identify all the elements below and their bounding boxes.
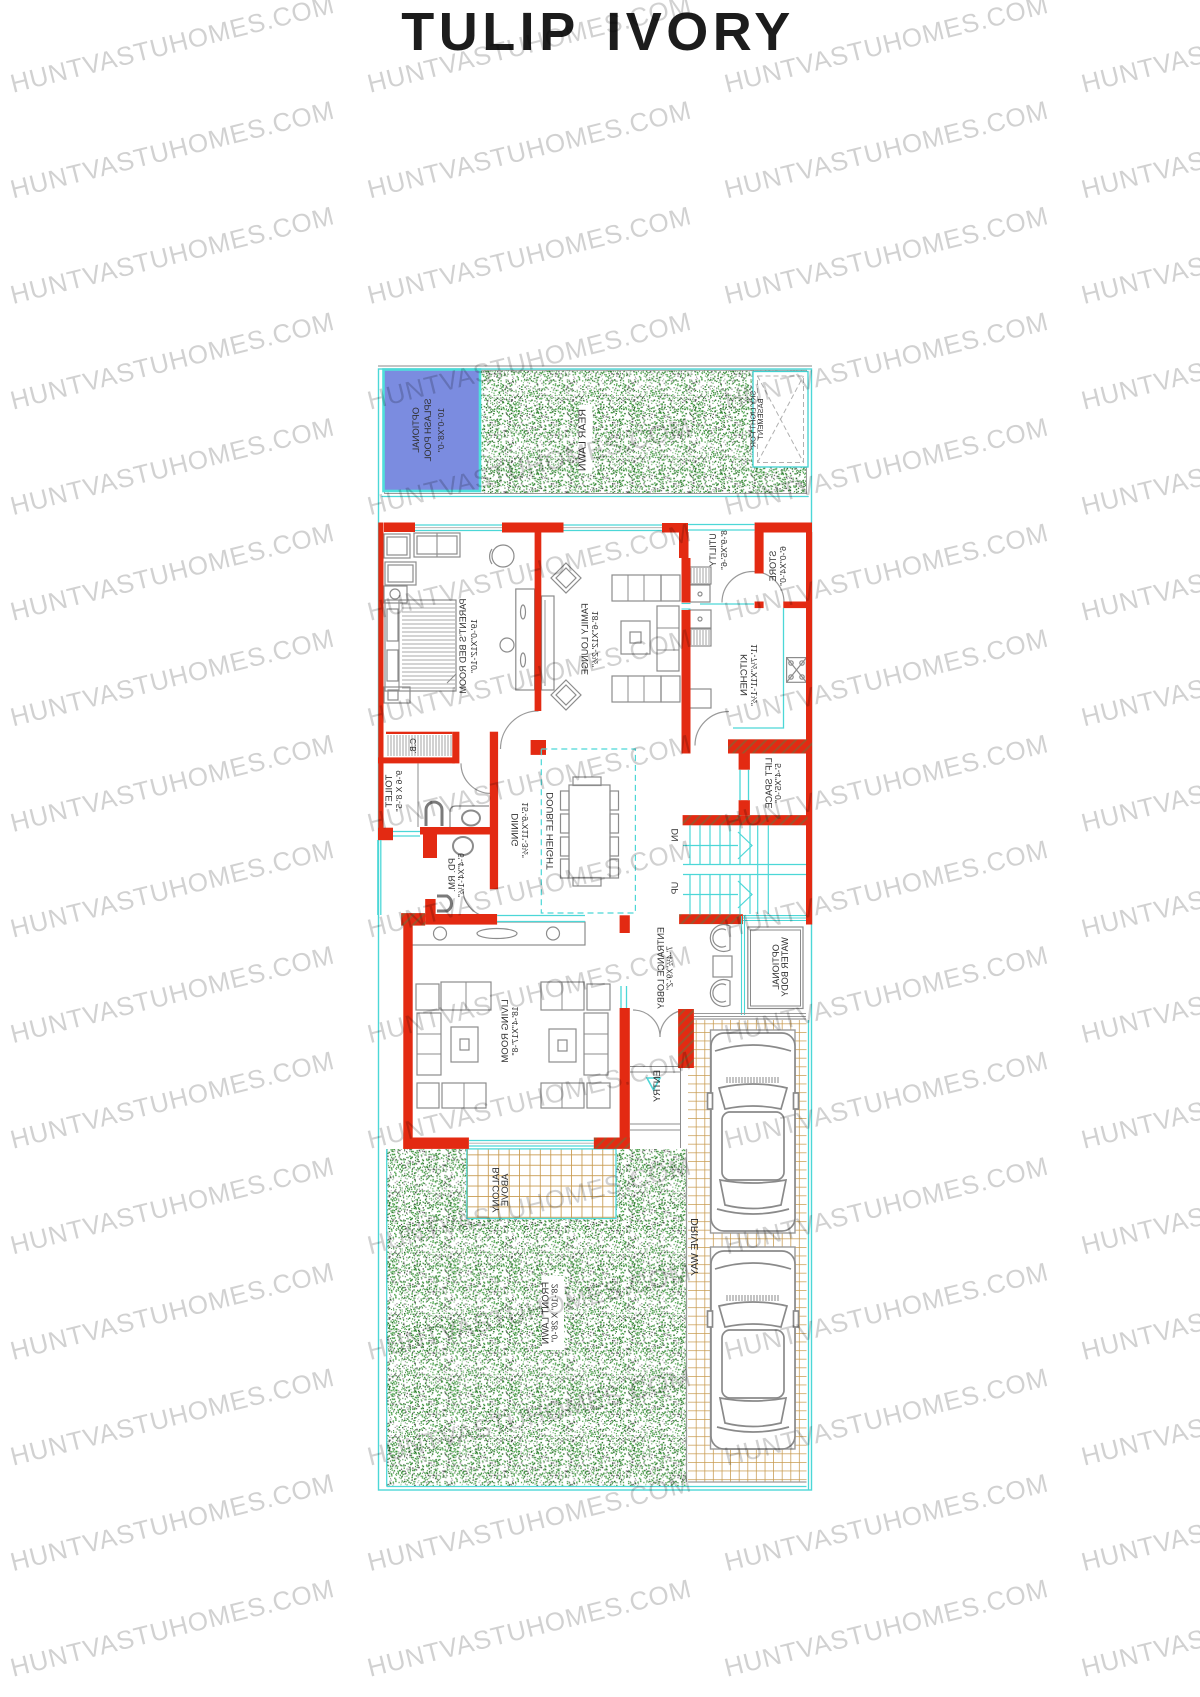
svg-text:HUNTVASTUHOMES.COM: HUNTVASTUHOMES.COM: [1078, 1468, 1200, 1578]
svg-text:HUNTVASTUHOMES.COM: HUNTVASTUHOMES.COM: [1078, 1256, 1200, 1366]
svg-text:HUNTVASTUHOMES.COM: HUNTVASTUHOMES.COM: [7, 834, 337, 944]
svg-text:HUNTVASTUHOMES.COM: HUNTVASTUHOMES.COM: [7, 412, 337, 522]
svg-text:HUNTVASTUHOMES.COM: HUNTVASTUHOMES.COM: [7, 1151, 337, 1261]
svg-text:8'-9"X5'-6": 8'-9"X5'-6": [719, 530, 729, 570]
svg-text:HUNTVASTUHOMES.COM: HUNTVASTUHOMES.COM: [7, 1362, 337, 1472]
svg-text:HUNTVASTUHOMES.COM: HUNTVASTUHOMES.COM: [7, 1573, 337, 1683]
svg-text:HUNTVASTUHOMES.COM: HUNTVASTUHOMES.COM: [7, 1468, 337, 1578]
svg-text:HUNTVASTUHOMES.COM: HUNTVASTUHOMES.COM: [364, 1045, 694, 1155]
svg-text:HUNTVASTUHOMES.COM: HUNTVASTUHOMES.COM: [721, 95, 1051, 205]
svg-text:HUNTVASTUHOMES.COM: HUNTVASTUHOMES.COM: [7, 623, 337, 733]
svg-text:HUNTVASTUHOMES.COM: HUNTVASTUHOMES.COM: [7, 0, 337, 99]
svg-text:HUNTVASTUHOMES.COM: HUNTVASTUHOMES.COM: [1078, 940, 1200, 1050]
svg-text:19'-0"X12'-10": 19'-0"X12'-10": [469, 619, 479, 673]
svg-text:HUNTVASTUHOMES.COM: HUNTVASTUHOMES.COM: [1078, 0, 1200, 99]
svg-text:HUNTVASTUHOMES.COM: HUNTVASTUHOMES.COM: [1078, 95, 1200, 205]
svg-text:HUNTVASTUHOMES.COM: HUNTVASTUHOMES.COM: [7, 200, 337, 310]
svg-text:HUNTVASTUHOMES.COM: HUNTVASTUHOMES.COM: [1078, 306, 1200, 416]
svg-text:HUNTVASTUHOMES.COM: HUNTVASTUHOMES.COM: [1078, 834, 1200, 944]
svg-text:HUNTVASTUHOMES.COM: HUNTVASTUHOMES.COM: [364, 940, 694, 1050]
svg-text:HUNTVASTUHOMES.COM: HUNTVASTUHOMES.COM: [7, 1045, 337, 1155]
svg-text:HUNTVASTUHOMES.COM: HUNTVASTUHOMES.COM: [7, 1256, 337, 1366]
svg-text:15'-9"X11'-3½": 15'-9"X11'-3½": [520, 802, 530, 857]
svg-text:UP: UP: [670, 882, 680, 895]
svg-text:HUNTVASTUHOMES.COM: HUNTVASTUHOMES.COM: [364, 200, 694, 310]
svg-text:HUNTVASTUHOMES.COM: HUNTVASTUHOMES.COM: [721, 834, 1051, 944]
svg-text:HUNTVASTUHOMES.COM: HUNTVASTUHOMES.COM: [721, 623, 1051, 733]
svg-text:PD. RM.: PD. RM.: [447, 858, 457, 892]
svg-text:HUNTVASTUHOMES.COM: HUNTVASTUHOMES.COM: [721, 1573, 1051, 1683]
svg-text:6'-0"X4'-0": 6'-0"X4'-0": [778, 546, 788, 586]
svg-text:HUNTVASTUHOMES.COM: HUNTVASTUHOMES.COM: [7, 95, 337, 205]
svg-text:HUNTVASTUHOMES.COM: HUNTVASTUHOMES.COM: [1078, 1151, 1200, 1261]
svg-text:DOUBLE HEIGHT: DOUBLE HEIGHT: [545, 792, 556, 870]
svg-text:HUNTVASTUHOMES.COM: HUNTVASTUHOMES.COM: [7, 728, 337, 838]
svg-text:HUNTVASTUHOMES.COM: HUNTVASTUHOMES.COM: [7, 306, 337, 416]
svg-text:HUNTVASTUHOMES.COM: HUNTVASTUHOMES.COM: [7, 940, 337, 1050]
svg-text:HUNTVASTUHOMES.COM: HUNTVASTUHOMES.COM: [364, 1573, 694, 1683]
svg-text:STORE: STORE: [768, 551, 778, 582]
svg-text:HUNTVASTUHOMES.COM: HUNTVASTUHOMES.COM: [1078, 728, 1200, 838]
svg-text:HUNTVASTUHOMES.COM: HUNTVASTUHOMES.COM: [1078, 1362, 1200, 1472]
svg-text:SPLASH POOL: SPLASH POOL: [423, 398, 433, 461]
svg-text:HUNTVASTUHOMES.COM: HUNTVASTUHOMES.COM: [1078, 1573, 1200, 1683]
svg-text:HUNTVASTUHOMES.COM: HUNTVASTUHOMES.COM: [1078, 623, 1200, 733]
svg-text:HUNTVASTUHOMES.COM: HUNTVASTUHOMES.COM: [1078, 1045, 1200, 1155]
svg-text:HUNTVASTUHOMES.COM: HUNTVASTUHOMES.COM: [1078, 200, 1200, 310]
svg-text:DRIVE WAY: DRIVE WAY: [689, 1218, 701, 1276]
svg-text:HUNTVASTUHOMES.COM: HUNTVASTUHOMES.COM: [721, 306, 1051, 416]
svg-text:10'-0"X8'-0": 10'-0"X8'-0": [436, 408, 446, 452]
svg-text:HUNTVASTUHOMES.COM: HUNTVASTUHOMES.COM: [721, 1468, 1051, 1578]
svg-text:WATER BODY: WATER BODY: [780, 937, 790, 997]
svg-text:UTILITY: UTILITY: [708, 533, 718, 567]
svg-text:HUNTVASTUHOMES.COM: HUNTVASTUHOMES.COM: [364, 95, 694, 205]
svg-text:HUNTVASTUHOMES.COM: HUNTVASTUHOMES.COM: [1078, 517, 1200, 627]
svg-text:HUNTVASTUHOMES.COM: HUNTVASTUHOMES.COM: [1078, 412, 1200, 522]
svg-text:HUNTVASTUHOMES.COM: HUNTVASTUHOMES.COM: [7, 517, 337, 627]
svg-text:HUNTVASTUHOMES.COM: HUNTVASTUHOMES.COM: [364, 623, 694, 733]
svg-text:HUNTVASTUHOMES.COM: HUNTVASTUHOMES.COM: [721, 200, 1051, 310]
svg-text:C.B.: C.B.: [409, 738, 418, 754]
svg-text:OPTIONAL: OPTIONAL: [411, 407, 421, 453]
